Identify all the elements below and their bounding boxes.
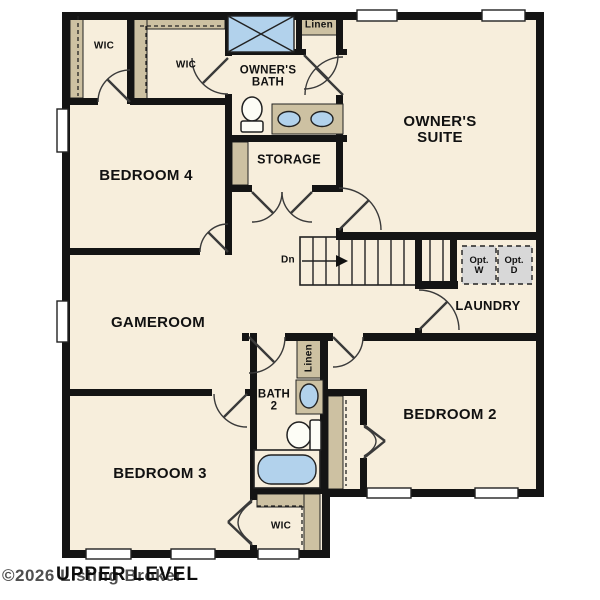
window bbox=[86, 549, 131, 559]
window bbox=[357, 10, 397, 21]
room-label-linen-mid: Linen bbox=[305, 344, 316, 372]
bathtub bbox=[254, 450, 320, 488]
sink bbox=[311, 112, 333, 127]
room-label-storage: STORAGE bbox=[257, 153, 321, 167]
window bbox=[475, 488, 518, 498]
room-label-laundry: LAUNDRY bbox=[455, 299, 520, 313]
room-label-owners-bath: OWNER'S BATH bbox=[240, 65, 297, 90]
bedroom2-closet-shelf bbox=[328, 396, 343, 489]
window bbox=[367, 488, 411, 498]
wic-bottom-shelf-right bbox=[304, 494, 320, 552]
room-label-bedroom3: BEDROOM 3 bbox=[113, 466, 207, 482]
window bbox=[482, 10, 525, 21]
toilet-bath2 bbox=[287, 420, 321, 451]
wic2-shelf-left bbox=[134, 16, 147, 100]
room-label-linen-top: Linen bbox=[305, 21, 333, 32]
room-label-wic2: WIC bbox=[176, 61, 196, 72]
stairs-direction-label: Dn bbox=[281, 256, 295, 267]
sink bbox=[278, 112, 300, 127]
floorplan-image: WIC WIC Linen OWNER'S BATH OWNER'S SUITE… bbox=[0, 0, 600, 600]
shower bbox=[228, 16, 294, 52]
optional-dryer-label: Opt. D bbox=[505, 256, 524, 277]
window bbox=[258, 549, 299, 559]
double-vanity bbox=[272, 104, 343, 134]
level-title: UPPER LEVEL bbox=[56, 564, 199, 586]
wic1-shelf bbox=[70, 16, 83, 98]
room-label-wic-bottom: WIC bbox=[271, 522, 291, 533]
toilet-owners-bath bbox=[241, 97, 263, 132]
window bbox=[57, 301, 68, 342]
room-label-bedroom2: BEDROOM 2 bbox=[403, 407, 497, 423]
optional-washer-label: Opt. W bbox=[470, 256, 489, 277]
window bbox=[57, 109, 68, 152]
room-label-wic1: WIC bbox=[94, 42, 114, 53]
storage-shelf bbox=[232, 142, 248, 185]
staircase bbox=[300, 237, 453, 285]
sink bbox=[300, 384, 318, 408]
room-label-bath2: BATH 2 bbox=[258, 389, 290, 414]
room-label-owners-suite: OWNER'S SUITE bbox=[403, 114, 476, 146]
window bbox=[171, 549, 215, 559]
bath2-vanity bbox=[296, 380, 323, 414]
room-label-bedroom4: BEDROOM 4 bbox=[99, 168, 193, 184]
room-label-gameroom: GAMEROOM bbox=[111, 315, 205, 331]
